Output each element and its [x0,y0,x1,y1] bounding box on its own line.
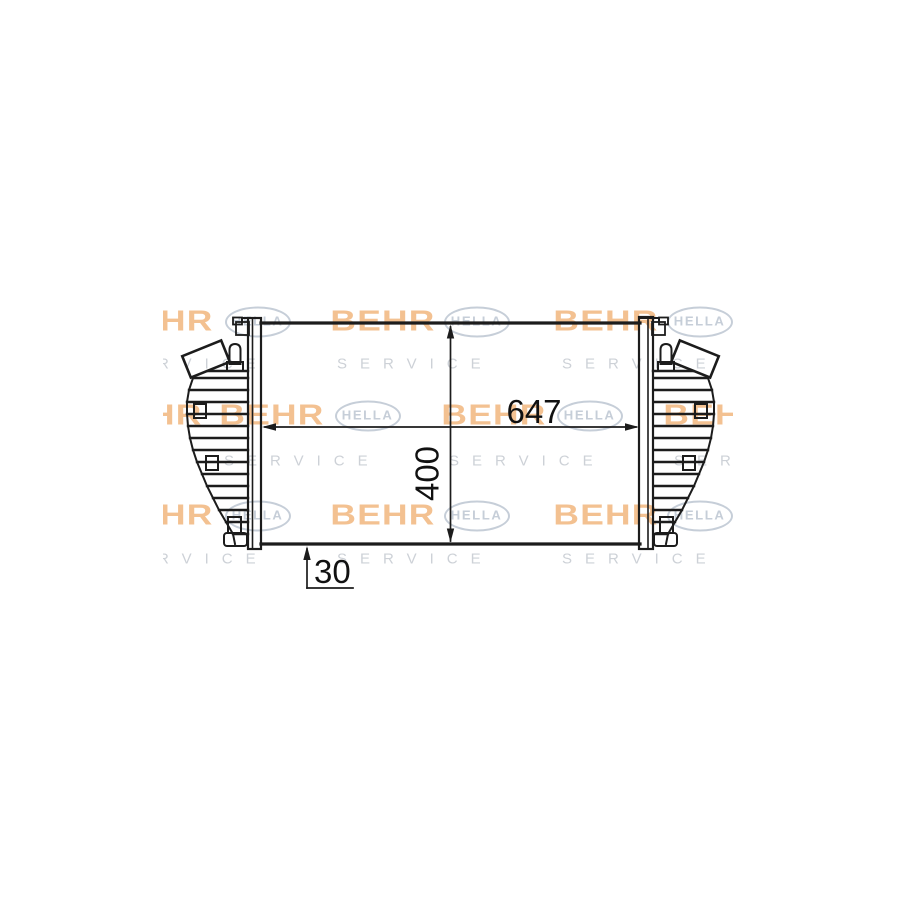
dim-depth-arrow [303,546,310,560]
right-tab-upper [695,404,707,418]
intercooler-drawing [0,0,900,900]
right-tank [639,317,668,549]
left-tab-upper [194,404,206,418]
left-tank [233,318,261,550]
dimension-height-label: 400 [411,444,444,504]
diagram-canvas: BEHRBEHRBEHRHELLAHELLAHELLABEHRBEHRBEHRB… [0,0,900,900]
dimension-width-label: 647 [505,395,563,428]
dimension-depth-label: 30 [314,555,351,588]
